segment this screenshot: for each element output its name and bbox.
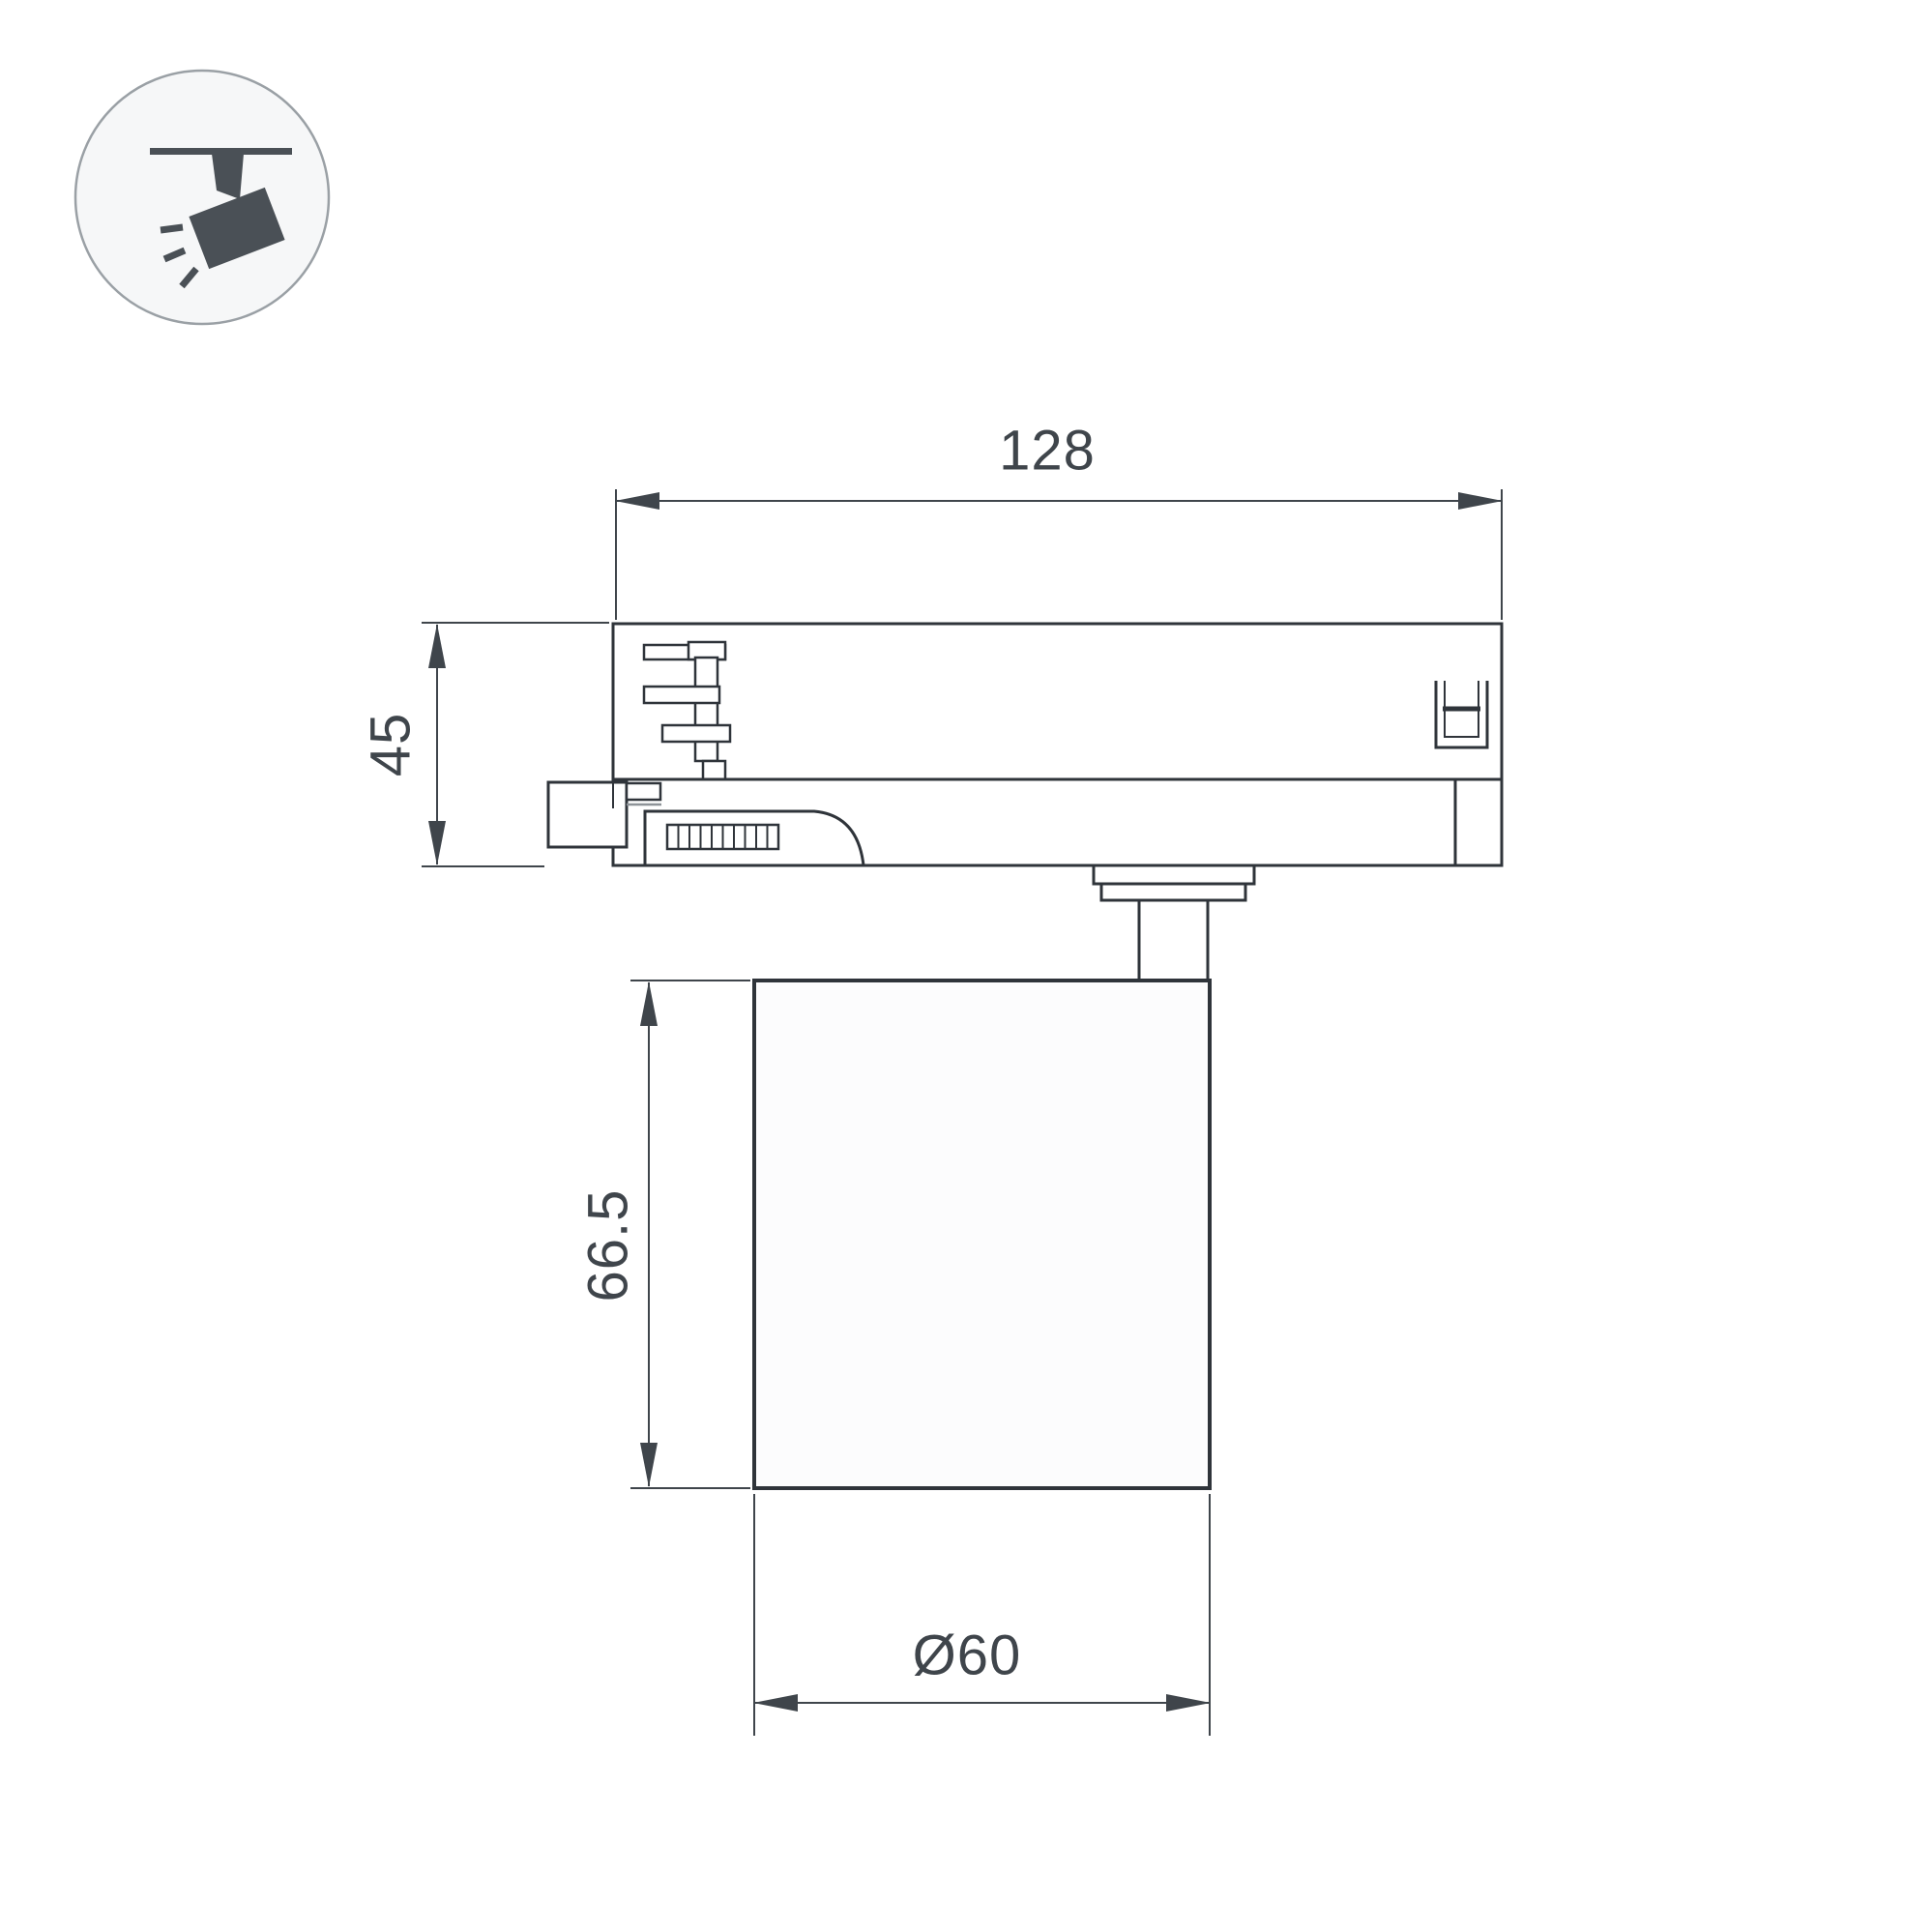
- dimension-adapter-width: 128: [616, 420, 1502, 621]
- contact-prong-bottom: [662, 725, 730, 742]
- adapter-lower-body: [613, 779, 1502, 865]
- dimension-lamp-diameter: Ø60: [754, 1494, 1210, 1736]
- track-adapter-view: [548, 624, 1502, 981]
- latch-detail: [627, 783, 660, 800]
- icon-circle: [75, 71, 329, 324]
- pivot-flange-upper: [1094, 865, 1254, 884]
- lamp-body: [754, 981, 1210, 1488]
- technical-drawing-page: 128 45 66.5 Ø60: [0, 0, 1932, 1932]
- dimension-label-adapter-width: 128: [999, 420, 1096, 483]
- contact-foot: [703, 761, 725, 779]
- dimension-label-adapter-height: 45: [360, 713, 423, 777]
- dimension-label-lamp-diameter: Ø60: [913, 1625, 1022, 1687]
- dimension-label-lamp-height: 66.5: [577, 1189, 640, 1303]
- dip-switch: [667, 825, 778, 849]
- icon-ceiling-bar: [150, 148, 292, 155]
- dimension-lamp-height: 66.5: [577, 981, 751, 1488]
- pivot-stem: [1094, 865, 1254, 981]
- contact-carrier: [695, 658, 717, 761]
- spotlight-icon: [75, 71, 329, 324]
- pivot-stem-shaft: [1139, 900, 1208, 981]
- contact-prong-middle: [644, 687, 719, 703]
- pivot-flange-lower: [1101, 884, 1245, 900]
- latch-box: [548, 782, 627, 847]
- adapter-upper-body: [613, 624, 1502, 779]
- technical-drawing-canvas: 128 45 66.5 Ø60: [0, 0, 1932, 1932]
